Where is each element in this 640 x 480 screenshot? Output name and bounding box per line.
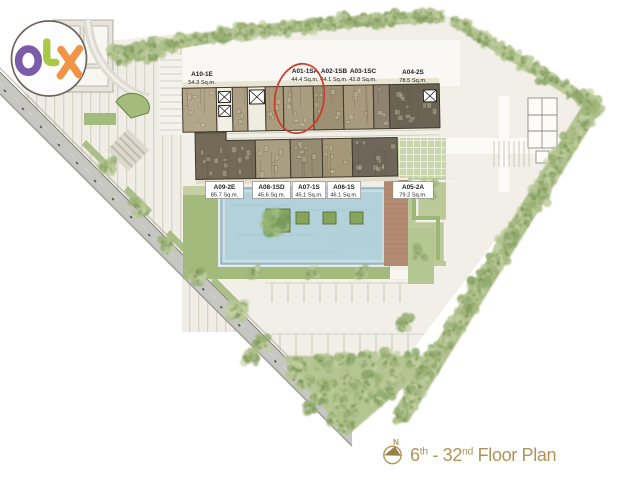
svg-text:45.6 Sq.m.: 45.6 Sq.m.: [258, 193, 286, 199]
svg-text:A04-2S: A04-2S: [402, 69, 424, 76]
svg-text:46.1 Sq.m.: 46.1 Sq.m.: [330, 193, 358, 199]
svg-text:A08-1SD: A08-1SD: [258, 184, 285, 191]
svg-text:44.4 Sq.m.: 44.4 Sq.m.: [291, 77, 319, 83]
svg-text:A09-2E: A09-2E: [214, 184, 236, 191]
svg-text:44.1 Sq.m.: 44.1 Sq.m.: [320, 77, 348, 83]
svg-text:79.2 Sq.m.: 79.2 Sq.m.: [399, 193, 427, 199]
svg-text:A02-1SB: A02-1SB: [321, 68, 348, 75]
svg-text:6th - 32nd Floor Plan: 6th - 32nd Floor Plan: [410, 445, 556, 465]
svg-text:A06-1S: A06-1S: [333, 184, 355, 191]
svg-text:85.7 Sq.m.: 85.7 Sq.m.: [211, 193, 239, 199]
svg-text:54.3 Sq.m.: 54.3 Sq.m.: [188, 80, 216, 86]
svg-text:45.1 Sq.m.: 45.1 Sq.m.: [295, 193, 323, 199]
svg-text:42.8 Sq.m.: 42.8 Sq.m.: [349, 77, 377, 83]
svg-text:A03-1SC: A03-1SC: [350, 68, 377, 75]
svg-text:N: N: [393, 438, 399, 447]
svg-text:A07-1S: A07-1S: [298, 184, 320, 191]
svg-text:A10-1E: A10-1E: [191, 71, 213, 78]
svg-text:A05-2A: A05-2A: [402, 184, 424, 191]
svg-text:78.5 Sq.m.: 78.5 Sq.m.: [399, 78, 427, 84]
